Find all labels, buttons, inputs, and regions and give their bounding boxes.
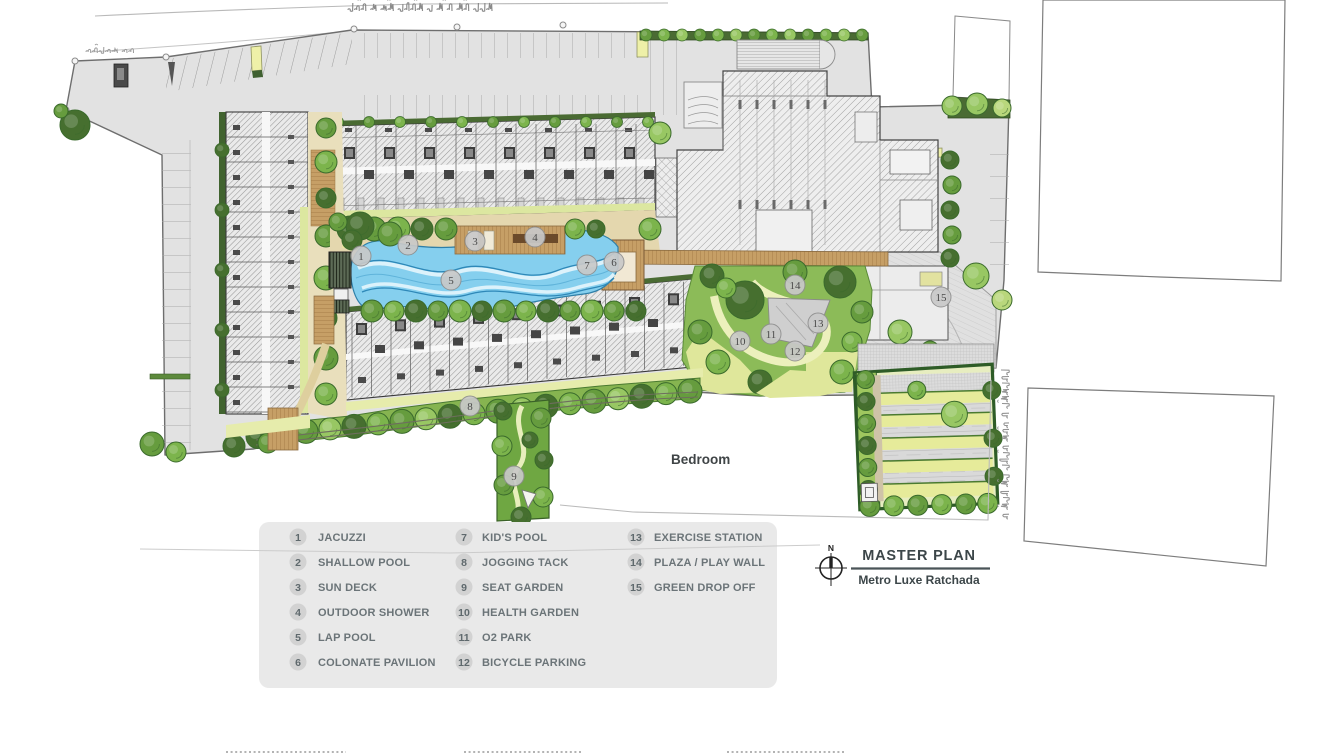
svg-text:Metro Luxe Ratchada: Metro Luxe Ratchada [858, 573, 980, 587]
svg-text:7: 7 [461, 532, 467, 544]
svg-text:MASTER PLAN: MASTER PLAN [862, 548, 976, 564]
svg-text:8: 8 [461, 557, 467, 569]
svg-text:12: 12 [458, 657, 470, 669]
svg-text:2: 2 [295, 557, 301, 569]
svg-text:EXERCISE STATION: EXERCISE STATION [654, 532, 763, 544]
svg-text:SEAT GARDEN: SEAT GARDEN [482, 582, 563, 594]
svg-text:N: N [828, 543, 834, 553]
svg-text:2: 2 [405, 240, 411, 252]
svg-text:SUN DECK: SUN DECK [318, 582, 377, 594]
svg-text:1: 1 [358, 251, 364, 263]
svg-text:15: 15 [936, 292, 948, 304]
svg-text:PLAZA / PLAY WALL: PLAZA / PLAY WALL [654, 557, 765, 569]
svg-text:11: 11 [458, 632, 469, 644]
svg-text:JOGGING TACK: JOGGING TACK [482, 557, 569, 569]
svg-text:7: 7 [584, 260, 590, 272]
svg-text:4: 4 [532, 232, 538, 244]
svg-text:12: 12 [790, 346, 801, 358]
svg-text:14: 14 [630, 557, 642, 569]
svg-text:3: 3 [472, 236, 478, 248]
svg-text:13: 13 [630, 532, 642, 544]
svg-text:1: 1 [295, 532, 301, 544]
svg-text:15: 15 [630, 582, 642, 594]
svg-text:9: 9 [461, 582, 467, 594]
svg-text:3: 3 [295, 582, 301, 594]
svg-text:OUTDOOR SHOWER: OUTDOOR SHOWER [318, 607, 430, 619]
svg-text:JACUZZI: JACUZZI [318, 532, 366, 544]
svg-text:SHALLOW POOL: SHALLOW POOL [318, 557, 410, 569]
svg-text:O2 PARK: O2 PARK [482, 632, 531, 644]
svg-text:9: 9 [511, 471, 517, 483]
svg-text:6: 6 [611, 257, 617, 269]
svg-text:10: 10 [458, 607, 470, 619]
svg-text:5: 5 [295, 632, 301, 644]
svg-text:14: 14 [790, 280, 802, 292]
svg-text:8: 8 [467, 401, 473, 413]
svg-text:10: 10 [735, 336, 747, 348]
svg-text:HEALTH GARDEN: HEALTH GARDEN [482, 607, 579, 619]
svg-text:4: 4 [295, 607, 301, 619]
svg-text:KID'S POOL: KID'S POOL [482, 532, 547, 544]
svg-text:6: 6 [295, 657, 301, 669]
svg-text:GREEN DROP OFF: GREEN DROP OFF [654, 582, 756, 594]
svg-text:COLONATE PAVILION: COLONATE PAVILION [318, 657, 436, 669]
svg-text:Bedroom: Bedroom [671, 452, 730, 467]
svg-text:BICYCLE PARKING: BICYCLE PARKING [482, 657, 586, 669]
svg-text:11: 11 [766, 329, 777, 341]
svg-text:LAP POOL: LAP POOL [318, 632, 376, 644]
svg-text:13: 13 [813, 318, 825, 330]
svg-text:5: 5 [448, 275, 454, 287]
